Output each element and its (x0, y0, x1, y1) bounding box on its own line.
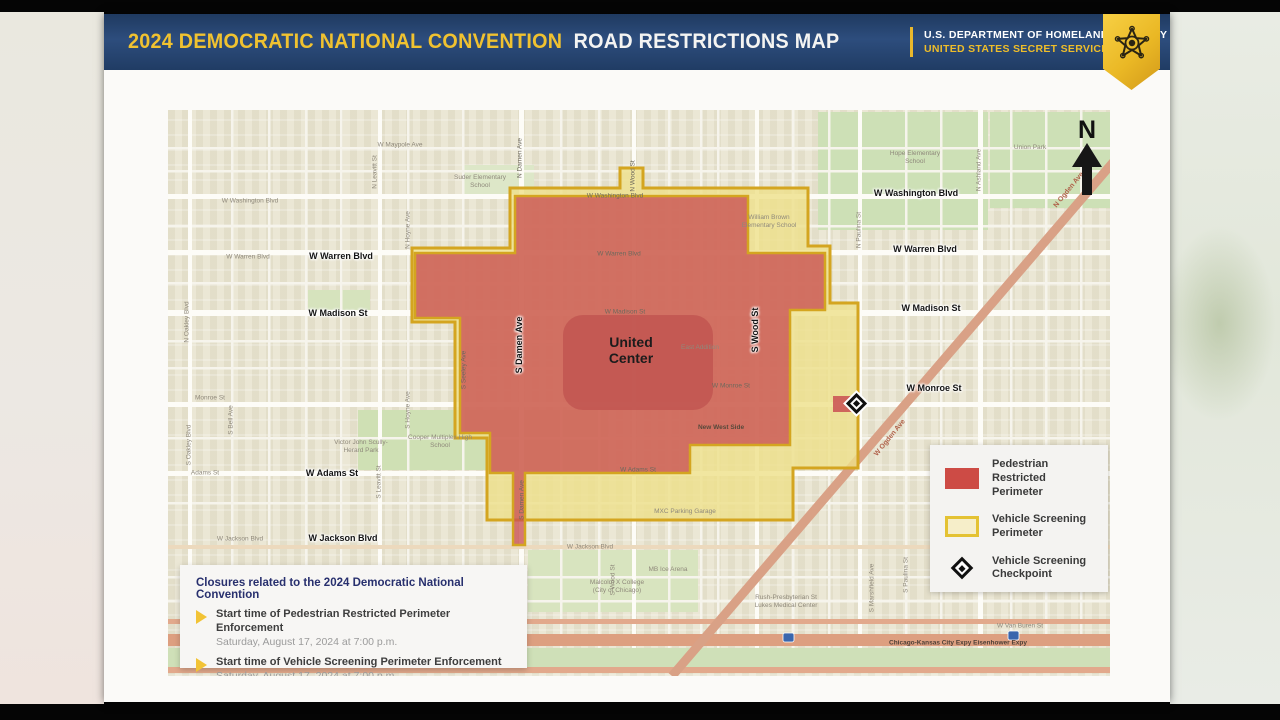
legend-item: Vehicle Screening Checkpoint (944, 555, 1096, 583)
gold-divider (910, 27, 913, 57)
header-bar: 2024 DEMOCRATIC NATIONAL CONVENTION ROAD… (104, 14, 1170, 70)
north-label: N (1066, 118, 1108, 143)
graphic-card: 2024 DEMOCRATIC NATIONAL CONVENTION ROAD… (104, 14, 1170, 702)
letterbox-top (0, 0, 1280, 12)
page-title: 2024 DEMOCRATIC NATIONAL CONVENTION ROAD… (128, 14, 839, 70)
letterbox-bottom (0, 704, 1280, 720)
closure-item: Start time of Pedestrian Restricted Peri… (196, 608, 513, 649)
closures-panel: Closures related to the 2024 Democratic … (180, 565, 527, 668)
secret-service-badge (1103, 14, 1160, 90)
north-arrow-icon (1072, 182, 1102, 199)
checkpoint-diamond-icon (951, 557, 974, 580)
pillarbox-right (1170, 12, 1280, 704)
map-canvas: W Washington BlvdW Warren BlvdW Madison … (168, 110, 1110, 676)
closures-title: Closures related to the 2024 Democratic … (196, 577, 513, 601)
broadcast-frame: 2024 DEMOCRATIC NATIONAL CONVENTION ROAD… (0, 0, 1280, 720)
north-indicator: N (1066, 118, 1108, 200)
bullet-triangle-icon (196, 658, 207, 672)
secret-service-star-badge-icon (1114, 25, 1150, 66)
pillarbox-left (0, 12, 104, 704)
legend-item: Vehicle Screening Perimeter (944, 513, 1096, 541)
title-convention: 2024 DEMOCRATIC NATIONAL CONVENTION (128, 30, 562, 54)
red-fill-swatch-icon (945, 468, 979, 489)
bullet-triangle-icon (196, 610, 207, 624)
yellow-outline-swatch-icon (945, 516, 979, 537)
closure-item: Start time of Vehicle Screening Perimete… (196, 656, 513, 676)
legend-panel: Pedestrian Restricted Perimeter Vehicle … (930, 445, 1108, 592)
venue-label-united-center: United Center (609, 334, 653, 366)
title-map: ROAD RESTRICTIONS MAP (574, 30, 840, 54)
legend-item: Pedestrian Restricted Perimeter (944, 458, 1096, 499)
